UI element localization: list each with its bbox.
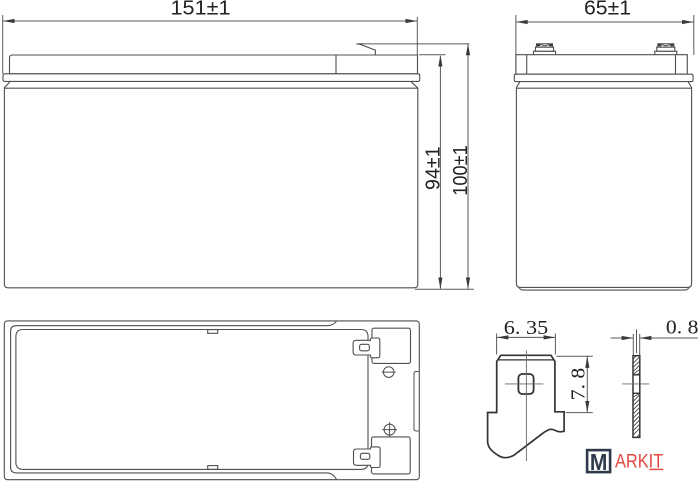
svg-text:M: M [590,449,608,475]
svg-text:7. 8: 7. 8 [568,368,590,401]
svg-text:100±1: 100±1 [450,145,472,196]
svg-text:94±1: 94±1 [422,146,444,190]
svg-text:6. 35: 6. 35 [504,317,549,339]
svg-text:65±1: 65±1 [584,0,631,20]
svg-text:151±1: 151±1 [171,0,231,20]
svg-text:0. 8: 0. 8 [666,317,699,339]
